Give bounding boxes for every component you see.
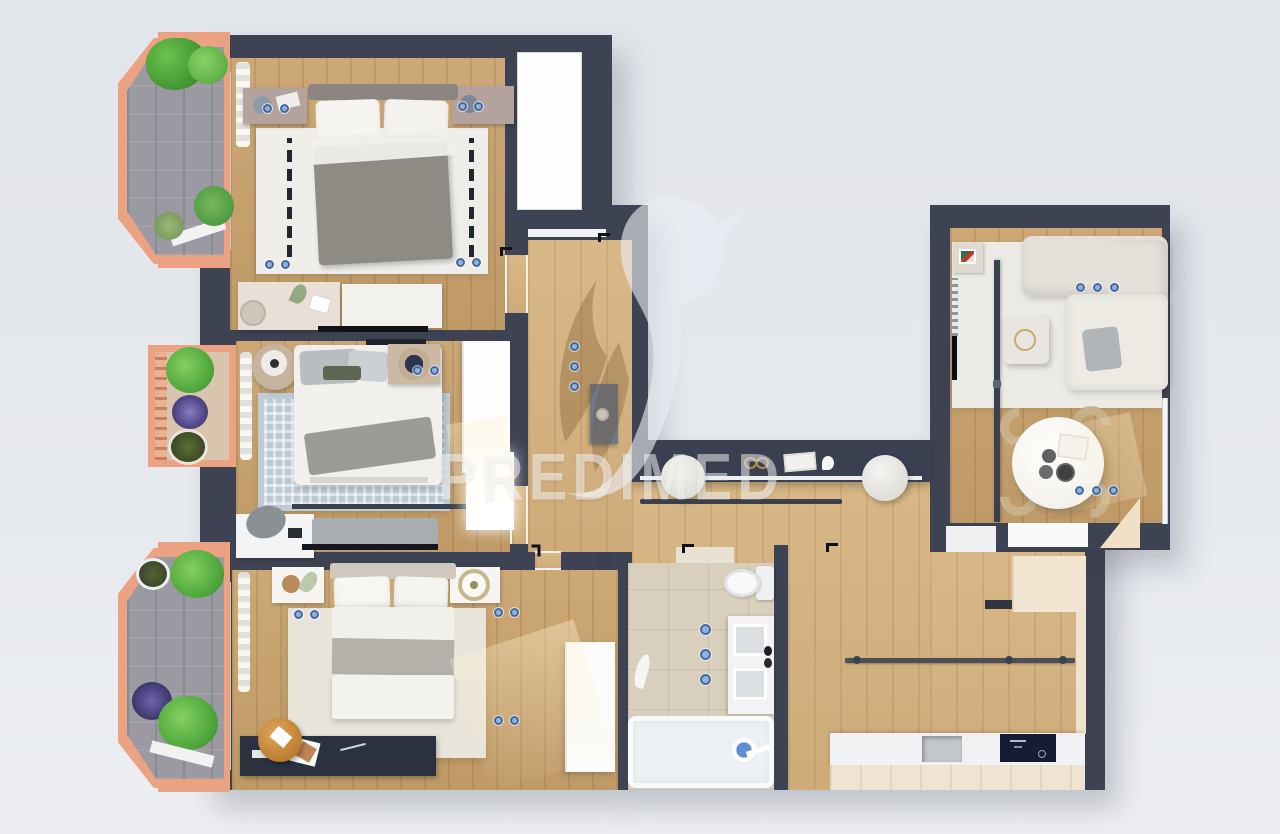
socket-spotlight-dot bbox=[1075, 486, 1084, 495]
socket-spotlight-dot bbox=[494, 716, 503, 725]
bedroom2-curtain bbox=[240, 352, 252, 460]
plate bbox=[1042, 449, 1056, 463]
bedroom2-desk bbox=[236, 514, 314, 558]
bedroom3-bed bbox=[330, 563, 456, 721]
socket-spotlight-dot bbox=[281, 260, 290, 269]
pillow bbox=[333, 576, 390, 610]
plant bbox=[166, 347, 214, 393]
socket-spotlight-dot bbox=[570, 382, 579, 391]
teddy-bear bbox=[282, 575, 300, 593]
round-stool bbox=[862, 455, 908, 501]
plant bbox=[188, 46, 228, 84]
lamp-center bbox=[470, 581, 478, 589]
door-hinge-mark bbox=[682, 544, 694, 553]
bedroom3-curtain bbox=[238, 572, 250, 692]
sofa-gray-cushion bbox=[1082, 326, 1123, 372]
plate bbox=[1039, 465, 1053, 479]
black-shelf bbox=[952, 336, 957, 380]
decor-ring bbox=[1014, 329, 1036, 351]
soap-bottle bbox=[764, 646, 772, 656]
marble-coffee-table bbox=[1003, 316, 1049, 364]
socket-spotlight-dot bbox=[280, 104, 289, 113]
floor-plan: PREDIMED bbox=[0, 0, 1280, 834]
toilet bbox=[724, 566, 774, 600]
bedroom1-tv-bar bbox=[318, 326, 428, 332]
kitchen-counter-front bbox=[830, 765, 1085, 790]
cooktop-marking bbox=[1014, 746, 1022, 748]
socket-spotlight-dot bbox=[294, 610, 303, 619]
balcony-rail bbox=[158, 256, 230, 268]
kitchen-cream-column bbox=[1076, 612, 1086, 734]
bedroom2-nightstand bbox=[388, 344, 440, 384]
cushion-green bbox=[323, 366, 361, 380]
desk-item bbox=[288, 528, 302, 538]
bedroom1-door-gap bbox=[505, 255, 528, 313]
wall-bathroom-left bbox=[618, 552, 628, 790]
framed-picture bbox=[959, 249, 976, 264]
dining-window bbox=[1162, 398, 1168, 524]
bedroom3-nightstand-right bbox=[450, 567, 500, 603]
socket-spotlight-dot bbox=[430, 366, 439, 375]
tv-mount-arrow bbox=[993, 380, 1001, 388]
desk-stool bbox=[240, 300, 266, 326]
plant-purple bbox=[172, 395, 208, 429]
balcony-top-left bbox=[118, 38, 230, 264]
socket-spotlight-dot bbox=[474, 102, 483, 111]
socket-spotlight-dot bbox=[265, 260, 274, 269]
desk-plant bbox=[289, 282, 310, 306]
kitchen-sink bbox=[922, 736, 962, 762]
dining-kitchen-threshold bbox=[946, 526, 996, 552]
socket-spotlight-dot bbox=[413, 366, 422, 375]
socket-spotlight-dot bbox=[510, 716, 519, 725]
plant bbox=[158, 696, 218, 750]
socket-spotlight-dot bbox=[1109, 486, 1118, 495]
balcony-bottom-left bbox=[118, 548, 230, 788]
socket-spotlight-dot bbox=[570, 362, 579, 371]
rail-knob bbox=[1005, 656, 1013, 664]
pen bbox=[340, 743, 366, 751]
induction-cooktop bbox=[1000, 734, 1056, 762]
bedroom3-nightstand-left bbox=[272, 567, 324, 603]
socket-spotlight-dot bbox=[456, 258, 465, 267]
socket-spotlight-dot bbox=[310, 610, 319, 619]
wall-bathroom-right bbox=[774, 545, 788, 790]
socket-spotlight-dot bbox=[570, 342, 579, 351]
socket-spotlight-dot bbox=[510, 608, 519, 617]
flower-sprig bbox=[297, 569, 320, 595]
bowl bbox=[1056, 463, 1075, 482]
bathroom-vanity bbox=[728, 616, 774, 714]
sink-basin bbox=[733, 624, 767, 656]
closet-room-floor bbox=[517, 52, 582, 210]
footboard bbox=[310, 477, 428, 483]
plant bbox=[194, 186, 234, 226]
bowl-speaker bbox=[398, 348, 430, 380]
gray-blanket bbox=[332, 638, 455, 676]
socket-spotlight-dot bbox=[458, 102, 467, 111]
socket-spotlight-dot bbox=[1093, 283, 1102, 292]
socket-spotlight-dot bbox=[494, 608, 503, 617]
bedroom2-round-table bbox=[252, 344, 298, 390]
soap-bottle bbox=[764, 658, 772, 668]
bedroom1-dresser bbox=[342, 284, 442, 328]
kitchen-rail bbox=[845, 658, 1075, 663]
cooktop-marking bbox=[1010, 740, 1026, 742]
bedroom1-desk bbox=[238, 282, 340, 330]
socket-spotlight-dot bbox=[1092, 486, 1101, 495]
tv-panel bbox=[994, 260, 1000, 522]
kitchen-appliance-bar bbox=[985, 600, 1012, 609]
shower-control bbox=[700, 624, 711, 635]
plant-pot bbox=[168, 429, 208, 465]
shower-control bbox=[700, 649, 711, 660]
rail-knob bbox=[853, 656, 861, 664]
socket-spotlight-dot bbox=[1076, 283, 1085, 292]
socket-spotlight-dot bbox=[1110, 283, 1119, 292]
cooktop-burner bbox=[1038, 750, 1046, 758]
plant-pot bbox=[136, 558, 170, 590]
shower-control bbox=[700, 674, 711, 685]
plant bbox=[154, 212, 184, 240]
door-hinge-mark bbox=[500, 247, 512, 256]
pillow bbox=[393, 576, 448, 610]
headboard bbox=[308, 84, 458, 100]
kitchen-counter bbox=[830, 733, 1085, 765]
desk-card bbox=[308, 294, 331, 315]
planter-middle-left bbox=[148, 345, 236, 467]
duvet-top bbox=[332, 607, 454, 641]
door-hinge-mark bbox=[532, 545, 541, 557]
gray-blanket bbox=[304, 416, 437, 475]
bedroom3-wardrobe bbox=[565, 642, 615, 772]
bathtub bbox=[628, 716, 774, 788]
kitchen-closet-cream bbox=[1012, 556, 1086, 612]
bedroom1-bed bbox=[308, 84, 458, 268]
bedroom2-bench-bar bbox=[302, 544, 438, 550]
balcony-rail bbox=[158, 780, 230, 792]
door-hinge-mark bbox=[826, 543, 838, 552]
dining-table bbox=[1012, 417, 1104, 509]
dining-niche bbox=[1008, 523, 1088, 547]
duvet-bottom bbox=[332, 675, 454, 719]
socket-spotlight-dot bbox=[263, 104, 272, 113]
bedroom2-bench-blanket bbox=[312, 518, 438, 546]
radiator-strip bbox=[952, 278, 958, 336]
table-item bbox=[270, 359, 279, 368]
socket-spotlight-dot bbox=[472, 258, 481, 267]
toilet-bowl bbox=[724, 569, 760, 597]
sink-basin bbox=[733, 668, 767, 700]
bedroom3-chair bbox=[258, 718, 302, 762]
plant bbox=[170, 550, 224, 598]
book bbox=[1056, 433, 1089, 461]
chair-napkin bbox=[270, 726, 293, 748]
art-cabinet bbox=[953, 243, 983, 273]
watermark-text: PREDIMED bbox=[438, 439, 858, 515]
rail-knob bbox=[1059, 656, 1067, 664]
bedroom1-nightstand-left bbox=[243, 88, 307, 124]
